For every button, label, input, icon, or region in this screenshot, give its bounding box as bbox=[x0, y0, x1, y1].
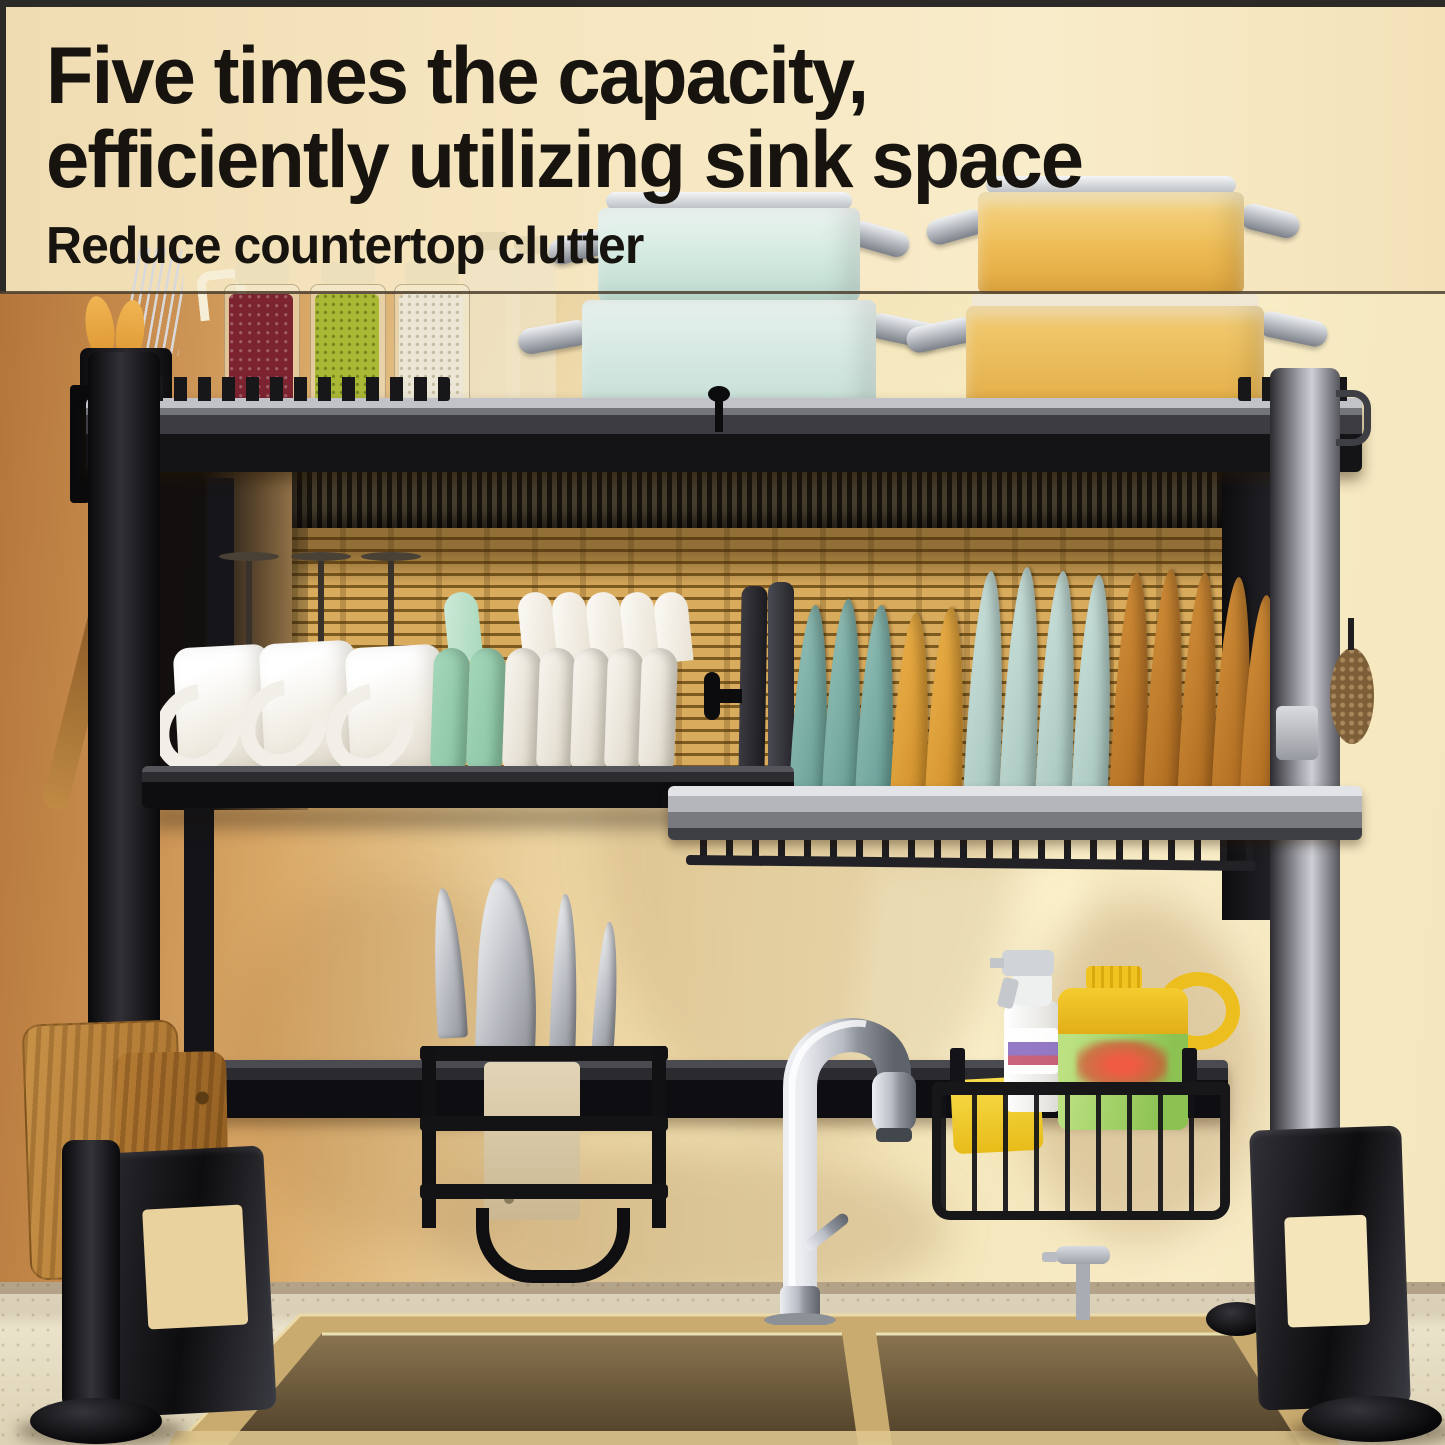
holder-bar bbox=[420, 1184, 668, 1199]
basket-hook bbox=[950, 1048, 965, 1086]
side-hook bbox=[1336, 390, 1371, 446]
bowl bbox=[466, 647, 506, 772]
glass-stem bbox=[246, 559, 252, 651]
bowl bbox=[430, 647, 470, 772]
top-border bbox=[0, 0, 1445, 7]
left-foot bbox=[30, 1398, 162, 1444]
spray-label bbox=[1008, 1028, 1058, 1074]
right-leg-window bbox=[1284, 1215, 1370, 1328]
soap-dispenser bbox=[1056, 1246, 1110, 1264]
left-leg-window bbox=[142, 1204, 248, 1329]
lid-knob bbox=[704, 672, 720, 720]
left-leg-front-post bbox=[62, 1140, 120, 1410]
left-border bbox=[0, 0, 6, 293]
cleaver-knife bbox=[475, 877, 541, 1051]
plate-rack-rail bbox=[668, 786, 1362, 840]
glass-foot bbox=[291, 552, 351, 561]
pot-handle bbox=[1256, 309, 1330, 349]
glass-foot bbox=[219, 552, 279, 561]
subheadline: Reduce countertop clutter bbox=[46, 218, 1371, 274]
rail-serration-left bbox=[150, 377, 450, 401]
jug-cap bbox=[1086, 966, 1142, 990]
pot-lid-panel bbox=[768, 582, 794, 782]
right-post-bracket bbox=[1276, 706, 1318, 760]
product-photo-scene: Five times the capacity, efficiently uti… bbox=[0, 0, 1445, 1445]
glass-stem bbox=[318, 559, 324, 651]
headline-line1: Five times the capacity, bbox=[46, 34, 1371, 118]
pot-lid-panel bbox=[738, 586, 767, 782]
headline: Five times the capacity, efficiently uti… bbox=[46, 34, 1371, 274]
bowl bbox=[638, 647, 678, 772]
right-leg bbox=[1249, 1125, 1411, 1410]
rail-knob bbox=[706, 386, 732, 432]
holder-side bbox=[422, 1046, 436, 1228]
holder-bar bbox=[420, 1116, 668, 1131]
knife bbox=[592, 921, 623, 1050]
hanging-scrubber bbox=[1330, 648, 1374, 744]
spray-nozzle bbox=[1002, 950, 1054, 976]
spray-bottle-shoulder bbox=[1012, 972, 1052, 1006]
holder-side bbox=[652, 1046, 666, 1228]
knife bbox=[549, 894, 580, 1051]
glass-stem bbox=[388, 559, 394, 651]
glass-foot bbox=[361, 552, 421, 561]
headline-line2: efficiently utilizing sink space bbox=[46, 118, 1371, 202]
right-frame-post bbox=[1270, 368, 1340, 1168]
u-hook bbox=[476, 1208, 630, 1283]
right-foot bbox=[1302, 1396, 1442, 1442]
knife bbox=[430, 887, 468, 1038]
holder-bar bbox=[420, 1046, 668, 1061]
jug-shoulder bbox=[1058, 988, 1188, 1034]
yellow-pot-bottom bbox=[966, 306, 1264, 412]
basket-hook bbox=[1182, 1048, 1197, 1086]
sponge-basket bbox=[932, 1082, 1230, 1220]
knife-holder bbox=[420, 878, 680, 1278]
divider-line bbox=[0, 291, 1445, 294]
soap-dispenser-stem bbox=[1076, 1262, 1090, 1320]
mesh-shelf-underside bbox=[292, 468, 1240, 528]
